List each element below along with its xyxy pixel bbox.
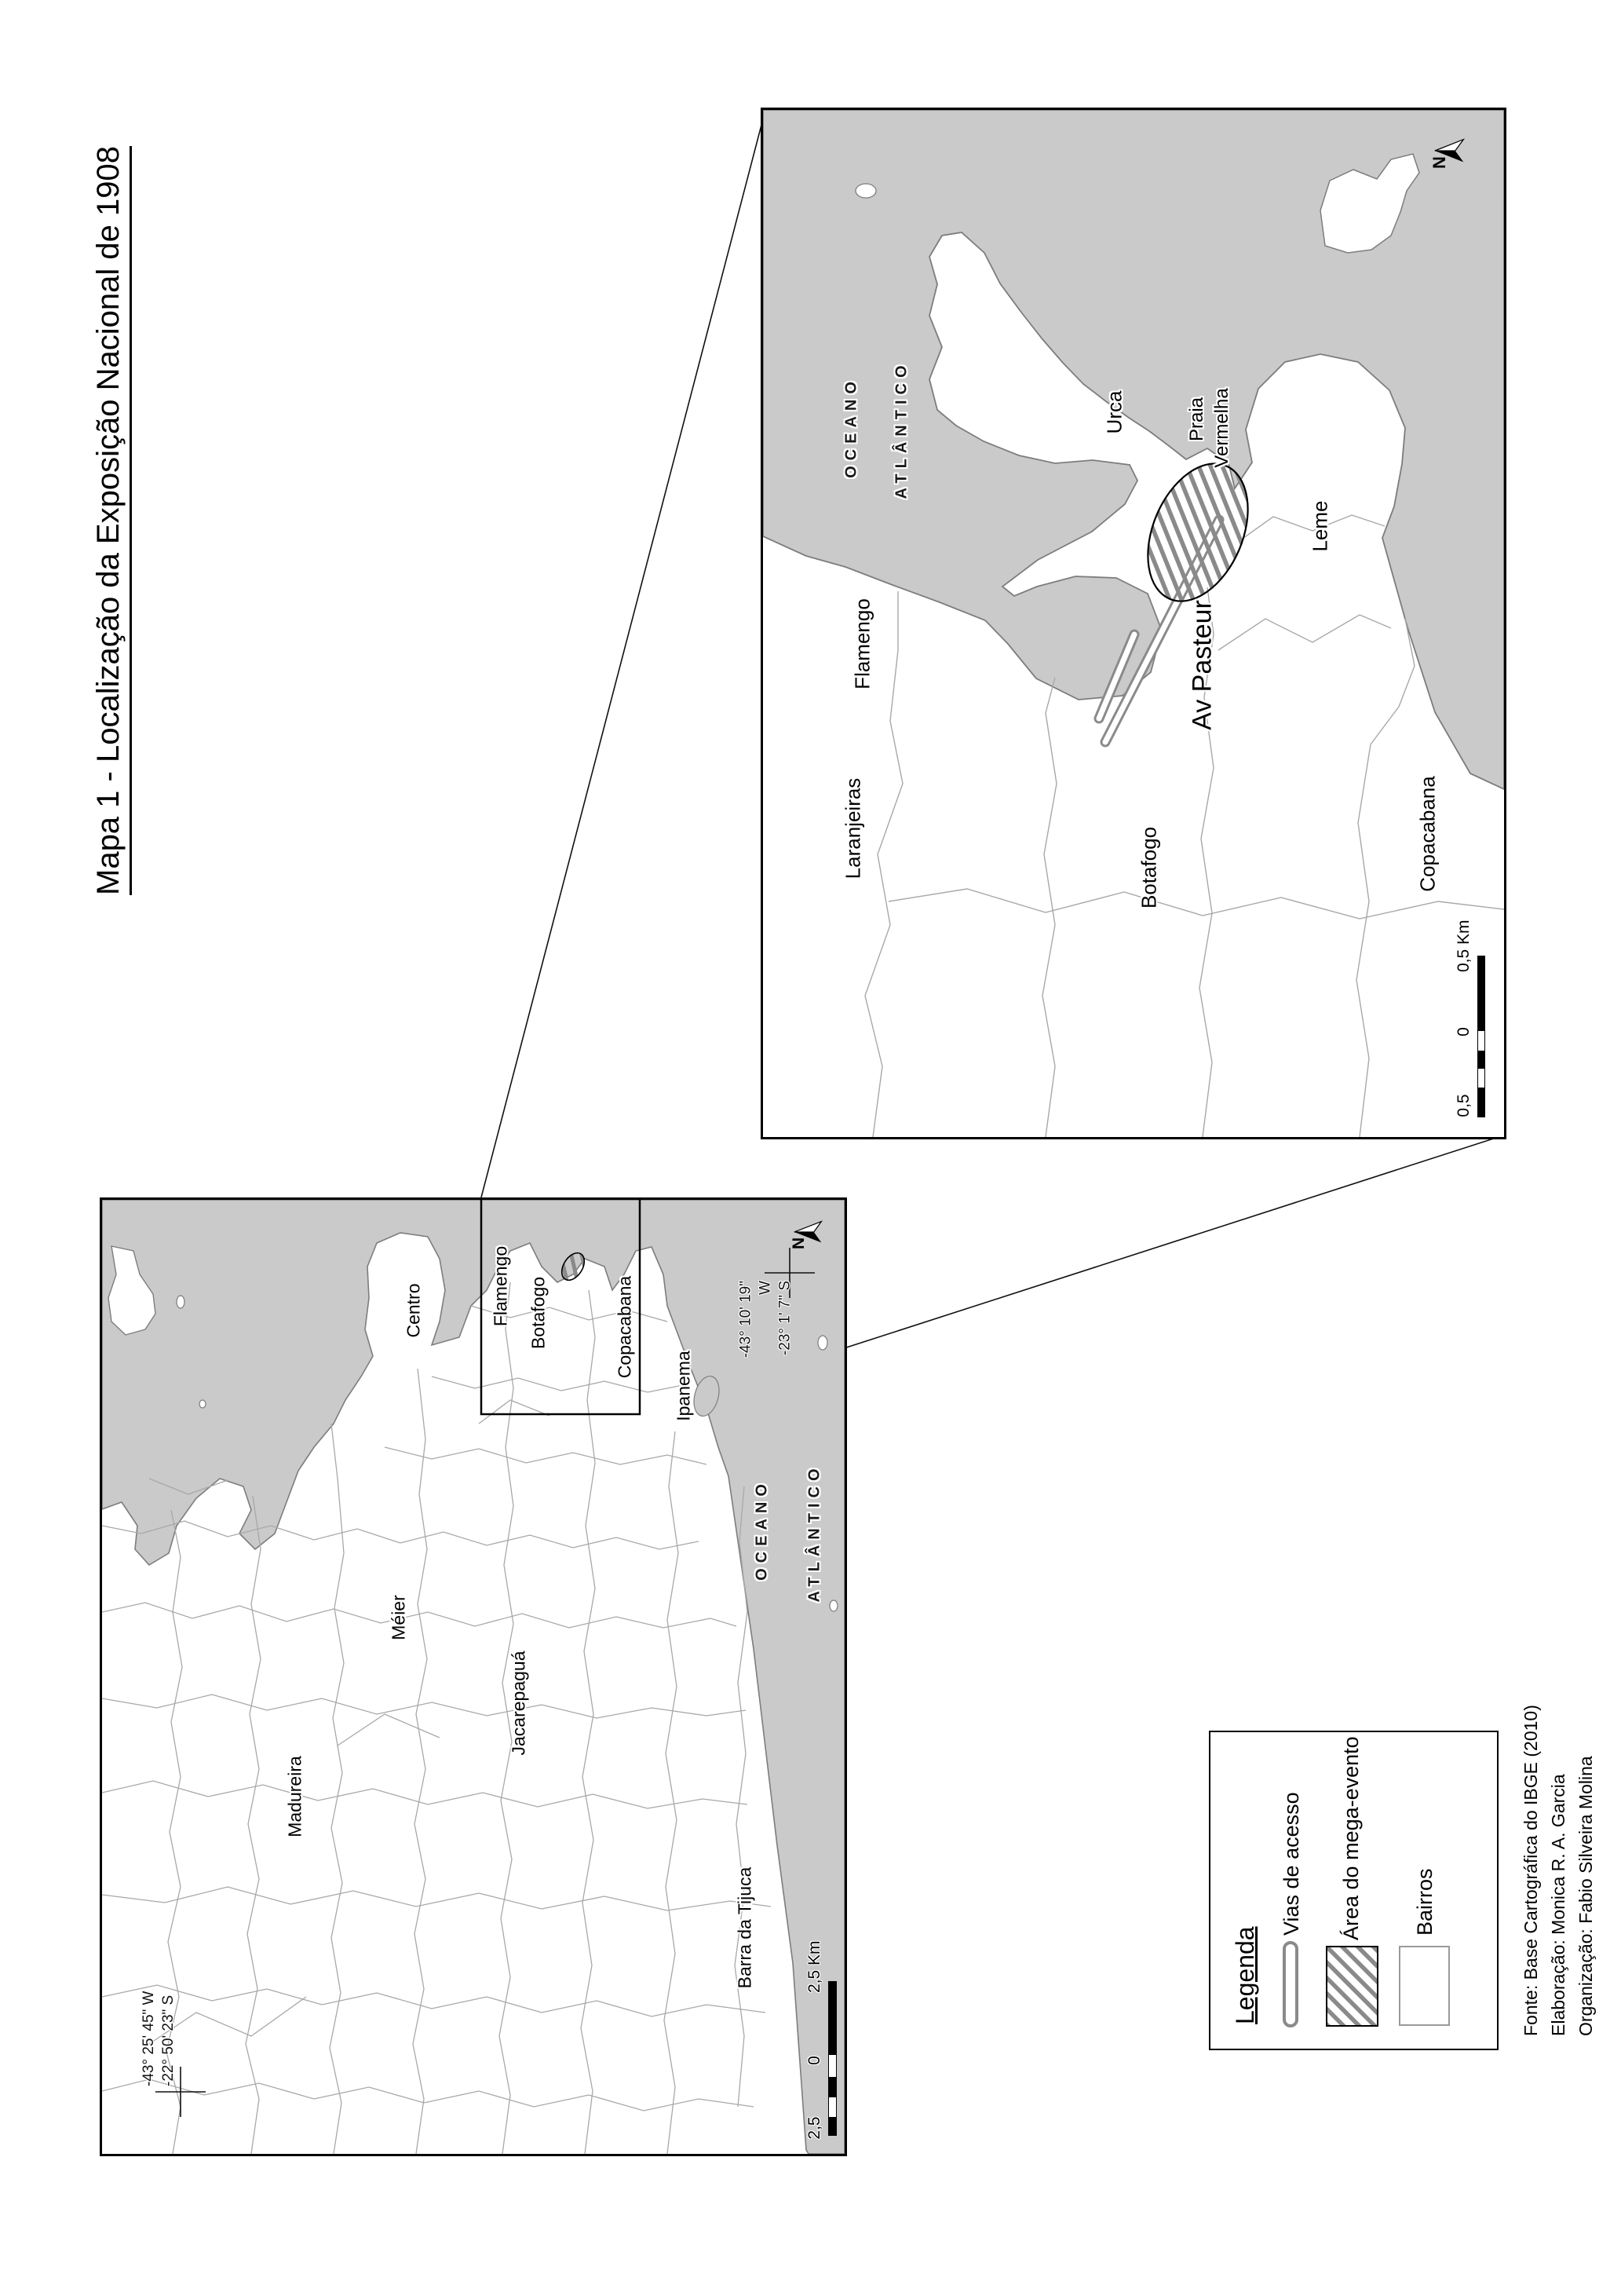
label-oceano-inset: OCEANO bbox=[843, 376, 861, 478]
map-title: Mapa 1 - Localização da Exposição Nacion… bbox=[91, 146, 132, 895]
label-urca: Urca bbox=[1103, 391, 1127, 434]
label-botafogo-ov: Botafogo bbox=[528, 1277, 549, 1349]
map-sheet: Mapa 1 - Localização da Exposição Nacion… bbox=[0, 0, 1621, 2296]
label-atlantico-ov: ATLÂNTICO bbox=[806, 1463, 824, 1602]
legend-road-symbol bbox=[1281, 1940, 1300, 2028]
north-arrow-overview: N bbox=[791, 1238, 807, 1249]
north-arrow-inset: N bbox=[1432, 156, 1448, 169]
label-meier: Méier bbox=[389, 1595, 410, 1640]
label-vermelha: Vermelha bbox=[1211, 388, 1233, 467]
legend-event-area-symbol bbox=[1326, 1946, 1378, 2027]
credits: Fonte: Base Cartográfica do IBGE (2010) … bbox=[1517, 1705, 1600, 2036]
credit-source: Fonte: Base Cartográfica do IBGE (2010) bbox=[1517, 1705, 1545, 2036]
legend-box: Legenda Vias de acesso Área do mega-even… bbox=[1209, 1731, 1499, 2050]
scanned-map-document: { "title": "Mapa 1 - Localização da Expo… bbox=[0, 0, 1621, 2296]
label-madureira: Madureira bbox=[285, 1756, 306, 1837]
coords-southwest: -43° 25' 45" W -22° 50' 23" S bbox=[139, 1991, 178, 2086]
inset-map: OCEANO ATLÂNTICO Flamengo Laranjeiras Bo… bbox=[761, 108, 1506, 1139]
label-centro: Centro bbox=[403, 1283, 425, 1337]
legend-road-label: Vias de acesso bbox=[1280, 1792, 1304, 1936]
label-leme: Leme bbox=[1309, 500, 1333, 551]
legend-title: Legenda bbox=[1231, 1926, 1260, 2024]
mega-event-ellipse bbox=[1129, 448, 1268, 616]
overview-ocean bbox=[102, 1200, 845, 2154]
label-laranjeiras: Laranjeiras bbox=[842, 778, 866, 879]
coords-northeast: -43° 10' 19" W -23° 1' 7" S bbox=[736, 1281, 795, 1362]
legend-event-area-label: Área do mega-evento bbox=[1339, 1736, 1364, 1940]
legend-bairros-label: Bairros bbox=[1413, 1868, 1437, 1936]
label-jacarepagua: Jacarepaguá bbox=[509, 1651, 530, 1756]
label-praia: Praia bbox=[1186, 397, 1208, 441]
credit-organization: Organização: Fabio Silveira Molina bbox=[1572, 1705, 1600, 2036]
label-barra-da-tijuca: Barra da Tijuca bbox=[735, 1867, 756, 1989]
label-ipanema: Ipanema bbox=[674, 1351, 695, 1421]
north-arrow-icon bbox=[791, 1215, 827, 1249]
label-copacabana-inset: Copacabana bbox=[1416, 776, 1440, 891]
label-oceano-ov: OCEANO bbox=[754, 1479, 772, 1581]
north-arrow-icon bbox=[1432, 133, 1469, 169]
label-flamengo-ov: Flamengo bbox=[491, 1246, 512, 1326]
overview-map-canvas bbox=[102, 1200, 845, 2154]
label-flamengo-inset: Flamengo bbox=[851, 598, 875, 689]
overview-map: Centro Flamengo Botafogo Copacabana Ipan… bbox=[100, 1197, 847, 2156]
credit-elaboration: Elaboração: Monica R. A. Garcia bbox=[1545, 1705, 1572, 2036]
label-botafogo-inset: Botafogo bbox=[1137, 827, 1162, 909]
label-atlantico-inset: ATLÂNTICO bbox=[893, 360, 911, 499]
label-av-pasteur: Av Pasteur bbox=[1188, 600, 1218, 730]
legend-bairros-symbol bbox=[1399, 1946, 1450, 2026]
label-copacabana-ov: Copacabana bbox=[615, 1276, 636, 1378]
